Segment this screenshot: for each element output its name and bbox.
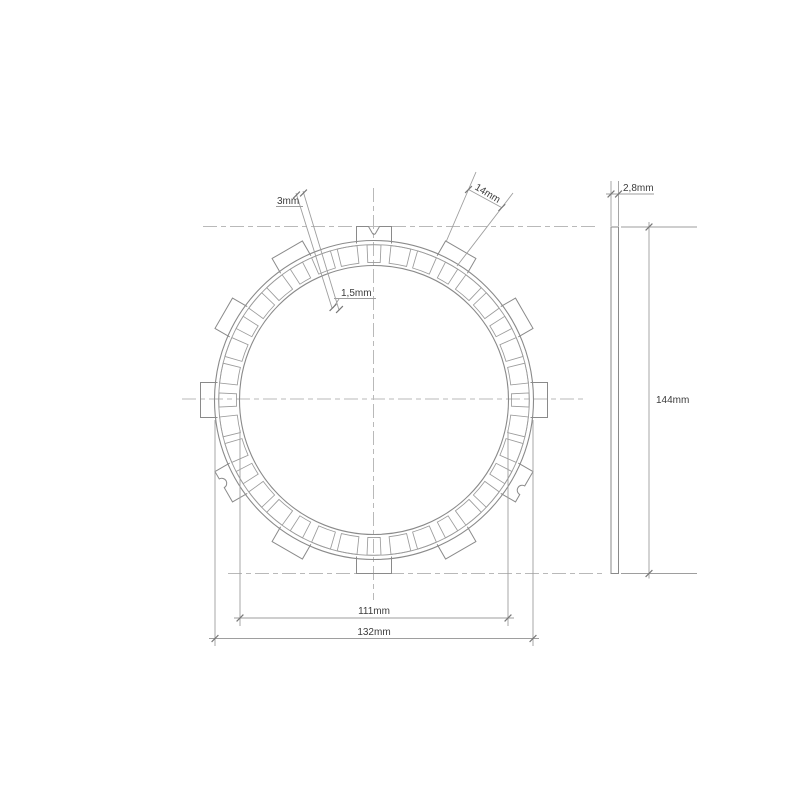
clutch-plate-drawing: 111mm132mm144mm2,8mm3mm1,5mm14mm	[0, 0, 800, 800]
friction-pad	[500, 439, 523, 463]
dim-label-inner-diameter: 111mm	[358, 606, 390, 617]
dim-label-land-depth: 1,5mm	[341, 288, 372, 299]
dimension-overall-diameter: 144mm	[621, 222, 697, 579]
friction-pad	[225, 338, 248, 362]
center-lines	[182, 188, 606, 600]
friction-pad	[413, 526, 437, 549]
friction-pad	[508, 363, 529, 385]
friction-pad	[236, 316, 258, 336]
friction-pad	[389, 534, 411, 555]
friction-pad	[511, 393, 529, 407]
friction-pad	[508, 415, 529, 437]
friction-pad	[220, 415, 241, 437]
dimension-tick	[336, 306, 343, 313]
side-view	[611, 227, 619, 574]
extension-line	[457, 193, 513, 266]
groove-extension-line	[296, 193, 332, 308]
dim-label-overall-diameter: 144mm	[656, 395, 689, 406]
dim-label-thickness: 2,8mm	[623, 183, 654, 194]
friction-pad	[490, 463, 512, 483]
friction-pad	[437, 262, 457, 284]
friction-pad	[290, 516, 310, 538]
friction-pad	[225, 439, 248, 463]
dimension-tick	[330, 304, 337, 311]
friction-pad	[312, 526, 336, 549]
side-view-plate-section	[611, 227, 619, 574]
friction-pad	[220, 363, 241, 385]
dimension-tick	[300, 190, 307, 197]
friction-pad	[490, 316, 512, 336]
friction-pad	[219, 393, 237, 407]
dimension-thickness: 2,8mm	[606, 181, 654, 226]
dim-label-tab-width: 14mm	[473, 182, 502, 206]
friction-pad	[337, 246, 359, 267]
friction-pad	[236, 463, 258, 483]
dimension-tab-width: 14mm	[446, 172, 513, 266]
technical-drawing-canvas: 111mm132mm144mm2,8mm3mm1,5mm14mm	[0, 0, 800, 800]
friction-pad	[337, 534, 359, 555]
dim-label-groove-width: 3mm	[277, 196, 299, 207]
friction-pad	[437, 516, 457, 538]
dim-label-friction-outer-diameter: 132mm	[357, 627, 390, 638]
friction-pad	[413, 251, 437, 274]
dimension-tick	[498, 204, 505, 211]
friction-pad	[389, 246, 411, 267]
friction-pad	[290, 262, 310, 284]
dimension-tick	[465, 186, 472, 193]
friction-pad	[500, 338, 523, 362]
extension-line	[446, 172, 476, 242]
